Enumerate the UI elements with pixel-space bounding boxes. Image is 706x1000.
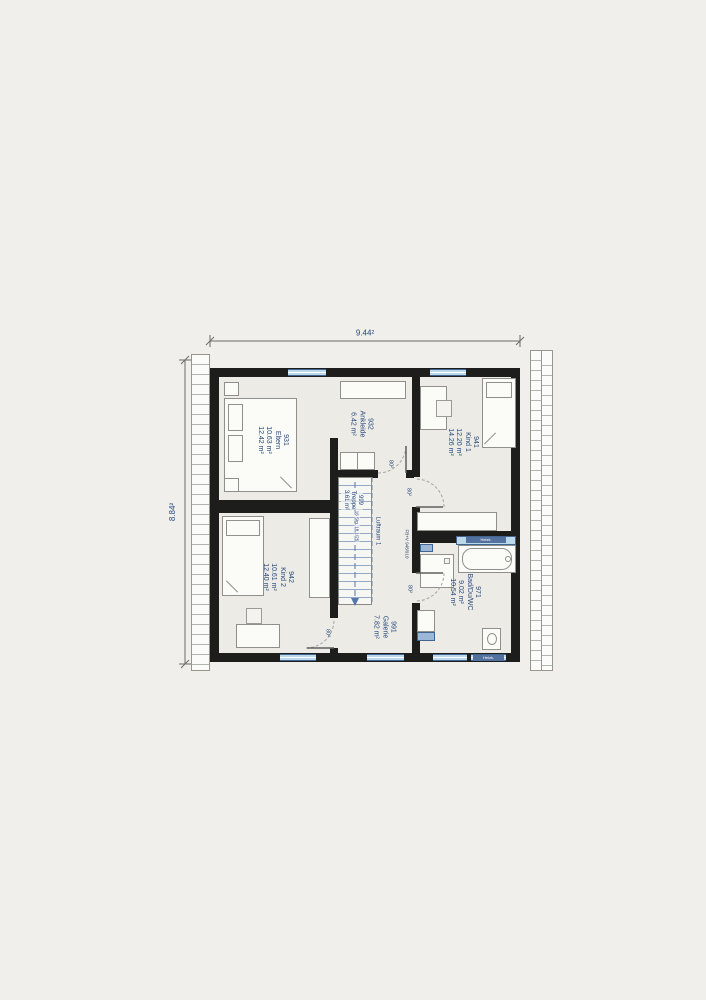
door-width-label-kind2: 80² [324, 629, 331, 637]
room-area: 7.82 m² [371, 615, 379, 639]
room-label-bad: 971 Bad/Du/WC 9.02 m² 10.54 m² [447, 574, 481, 611]
room-name: Bad/Du/WC [464, 574, 472, 611]
room-area: 10.54 m² [447, 574, 455, 611]
room-area: 6.42 m² [348, 411, 356, 438]
room-area: 12.20 m² [454, 428, 462, 456]
room-number: 942 [285, 563, 293, 591]
door-arc-kind1 [416, 479, 444, 507]
room-area: 10.63 m² [264, 426, 272, 454]
door-arc-bad [416, 573, 444, 601]
dimension-line-left [179, 356, 191, 668]
room-area: 3.61 m² [341, 490, 348, 510]
room-area: 9.02 m² [456, 574, 464, 611]
room-name: Kind 2 [277, 563, 285, 591]
room-number: 931 [280, 426, 288, 454]
door-arc-ankleide [378, 445, 406, 473]
floorplan-page: { "plan": { "dimensions": { "width_label… [0, 0, 706, 1000]
room-number: 941 [470, 428, 478, 456]
room-name: Eltern [272, 426, 280, 454]
room-name: Galerie [380, 615, 388, 639]
void-label: Luftraum 1 [373, 517, 380, 546]
railing-note: FB+V 948/910 [404, 530, 409, 559]
room-area: 12.42 m² [255, 426, 263, 454]
room-label-eltern: 931 Eltern 10.63 m² 12.42 m² [255, 426, 289, 454]
door-width-label-kind1: 80² [405, 488, 412, 496]
dimension-height-label: 8.84² [168, 503, 178, 521]
room-name: Treppe [348, 490, 355, 510]
door-width-label-bad: 80² [406, 585, 413, 593]
room-area: 12.40 m² [260, 563, 268, 591]
stair-direction-arrow-icon [351, 598, 359, 606]
door-width-label-ankleide: 80² [387, 460, 394, 468]
room-label-ankleide: 932 Ankleide 6.42 m² [348, 411, 373, 438]
room-label-kind2: 942 Kind 2 10.61 m² 12.40 m² [260, 563, 294, 591]
room-number: 991 [388, 615, 396, 639]
room-label-treppe: 999 Treppe 3.61 m² [341, 490, 363, 510]
room-number: 932 [365, 411, 373, 438]
dimension-width-label: 9.44² [356, 329, 374, 338]
room-area: 14.26 m² [445, 428, 453, 456]
room-name: Ankleide [357, 411, 365, 438]
stair-steps-note: 16 Stg. 18,1/25 [354, 511, 359, 542]
room-name: Kind 1 [462, 428, 470, 456]
room-number: 999 [356, 490, 363, 510]
room-label-galerie: 991 Galerie 7.82 m² [371, 615, 396, 639]
room-number: 971 [472, 574, 480, 611]
room-label-kind1: 941 Kind 1 12.20 m² 14.26 m² [445, 428, 479, 456]
room-area: 10.61 m² [269, 563, 277, 591]
